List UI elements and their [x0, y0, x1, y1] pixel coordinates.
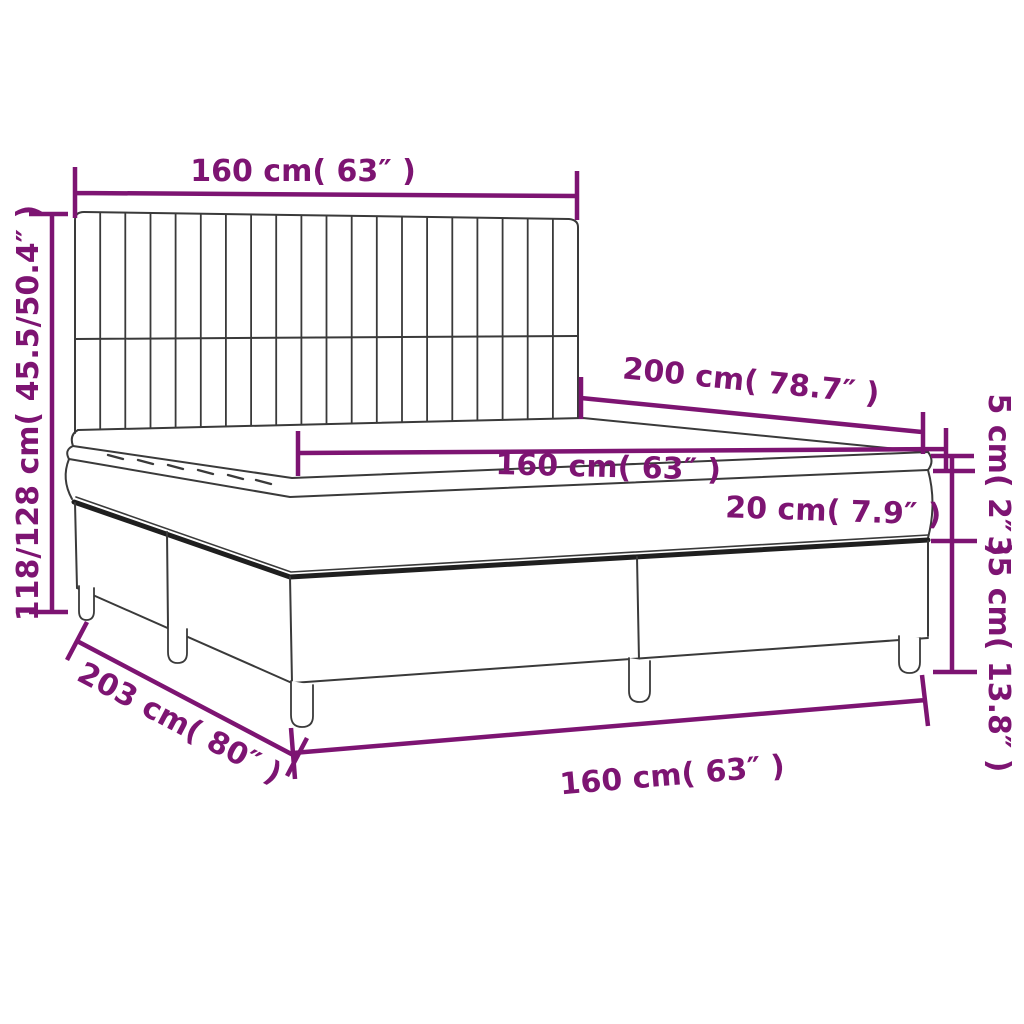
headboard	[75, 212, 578, 433]
base-height-label: 35 cm( 13.8″ )	[981, 536, 1016, 773]
bed-leg	[79, 586, 94, 620]
mattress-width-label: 160 cm( 63″ )	[495, 447, 721, 488]
bed-leg	[168, 625, 187, 663]
headboard-width-label: 160 cm( 63″ )	[190, 154, 416, 189]
topper-thickness-label: 5 cm( 2″ )	[981, 394, 1016, 557]
bed-leg	[899, 636, 920, 673]
bed-dimension-diagram: 160 cm( 63″ ) 118/128 cm( 45.5/50.4″ ) 2…	[0, 0, 1024, 1024]
diagram-canvas: 160 cm( 63″ ) 118/128 cm( 45.5/50.4″ ) 2…	[0, 0, 1024, 1024]
bed-leg	[629, 658, 650, 702]
base-left-drawer-divider	[167, 532, 168, 627]
bed-leg	[291, 681, 313, 727]
headboard-height-label: 118/128 cm( 45.5/50.4″ )	[11, 205, 46, 621]
